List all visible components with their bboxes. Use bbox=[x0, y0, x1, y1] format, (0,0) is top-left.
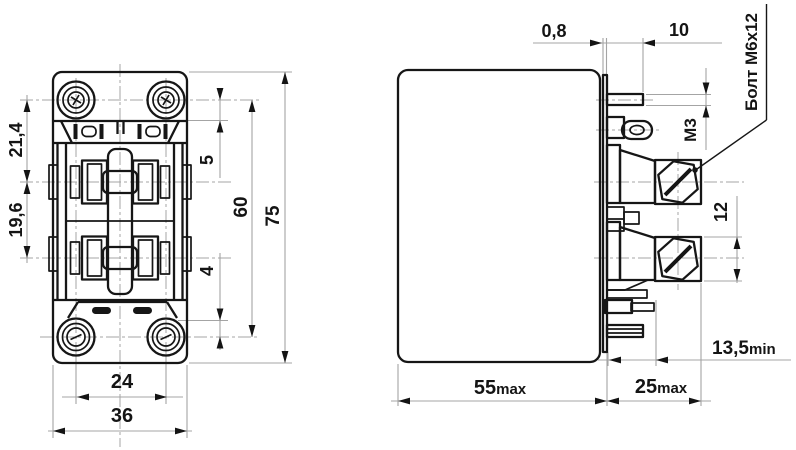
contact-bolt-upper bbox=[607, 145, 701, 204]
relay-technical-drawing: 21,4 19,6 5 4 60 75 24 36 bbox=[0, 0, 796, 450]
mounting-screw-top-right bbox=[148, 82, 185, 119]
dim-label-10: 10 bbox=[669, 20, 689, 40]
dim-label-21-4: 21,4 bbox=[6, 122, 26, 157]
side-view-dimensions: 0,8 10 М3 Болт М6х12 12 13,5min 55max 25… bbox=[391, 4, 791, 404]
dim-label-55max: 55max bbox=[474, 377, 527, 399]
terminal-tab-with-hole bbox=[607, 117, 652, 139]
contact-bolt-lower bbox=[607, 222, 701, 281]
mounting-screw-top-left bbox=[58, 82, 95, 119]
dim-label-24: 24 bbox=[111, 371, 134, 393]
dim-label-5: 5 bbox=[197, 155, 217, 165]
bottom-terminals bbox=[605, 280, 654, 337]
dim-label-75: 75 bbox=[263, 205, 284, 227]
dim-label-13-5min: 13,5min bbox=[712, 338, 776, 359]
dim-label-0-8: 0,8 bbox=[541, 21, 566, 41]
dim-label-m3: М3 bbox=[681, 118, 700, 142]
dim-label-25max: 25max bbox=[635, 376, 688, 398]
dim-label-19-6: 19,6 bbox=[6, 202, 26, 237]
mounting-screw-bottom-right bbox=[148, 319, 185, 356]
side-view-construction-lines bbox=[398, 38, 744, 406]
bottom-slot-band bbox=[68, 302, 177, 318]
dim-label-4: 4 bbox=[197, 266, 217, 276]
dim-label-60: 60 bbox=[231, 196, 252, 217]
drawing-canvas: 21,4 19,6 5 4 60 75 24 36 bbox=[0, 0, 796, 450]
dim-label-36: 36 bbox=[111, 405, 133, 427]
mounting-screw-bottom-left bbox=[58, 319, 95, 356]
callout-label-bolt-m6x12: Болт М6х12 bbox=[742, 13, 761, 111]
dim-label-12: 12 bbox=[711, 202, 731, 222]
